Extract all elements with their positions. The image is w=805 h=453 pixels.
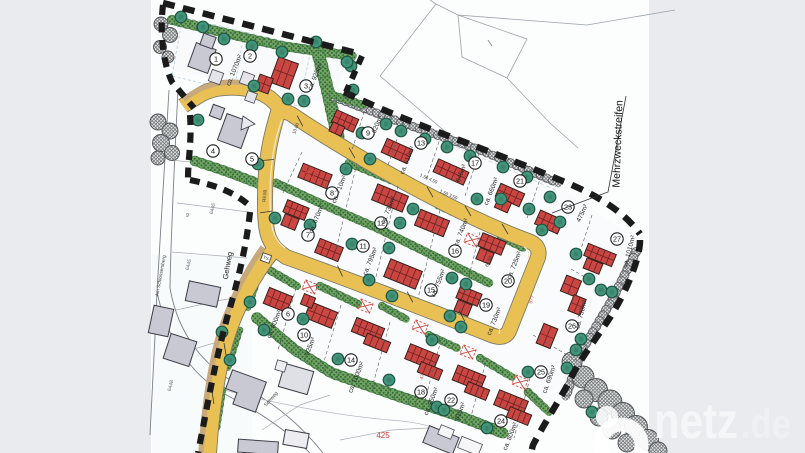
svg-text:21: 21 (516, 176, 524, 185)
svg-text:27: 27 (613, 234, 621, 243)
svg-text:10: 10 (300, 330, 308, 339)
svg-text:5: 5 (250, 154, 254, 163)
svg-text:14: 14 (347, 355, 355, 364)
svg-text:17: 17 (471, 158, 479, 167)
svg-text:2: 2 (248, 51, 252, 60)
svg-text:4: 4 (211, 146, 215, 155)
svg-text:22: 22 (447, 395, 455, 404)
svg-text:.de: .de (741, 400, 791, 447)
svg-text:1: 1 (214, 54, 218, 63)
svg-text:24: 24 (497, 416, 505, 425)
svg-text:19: 19 (482, 300, 490, 309)
svg-text:13: 13 (417, 138, 425, 147)
svg-text:9: 9 (186, 213, 189, 219)
svg-text:25: 25 (537, 367, 545, 376)
svg-text:netz: netz (654, 393, 738, 449)
svg-text:9: 9 (366, 128, 370, 137)
svg-text:425: 425 (376, 431, 390, 440)
svg-text:11: 11 (359, 241, 367, 250)
svg-text:18: 18 (417, 387, 425, 396)
svg-text:6: 6 (286, 309, 290, 318)
